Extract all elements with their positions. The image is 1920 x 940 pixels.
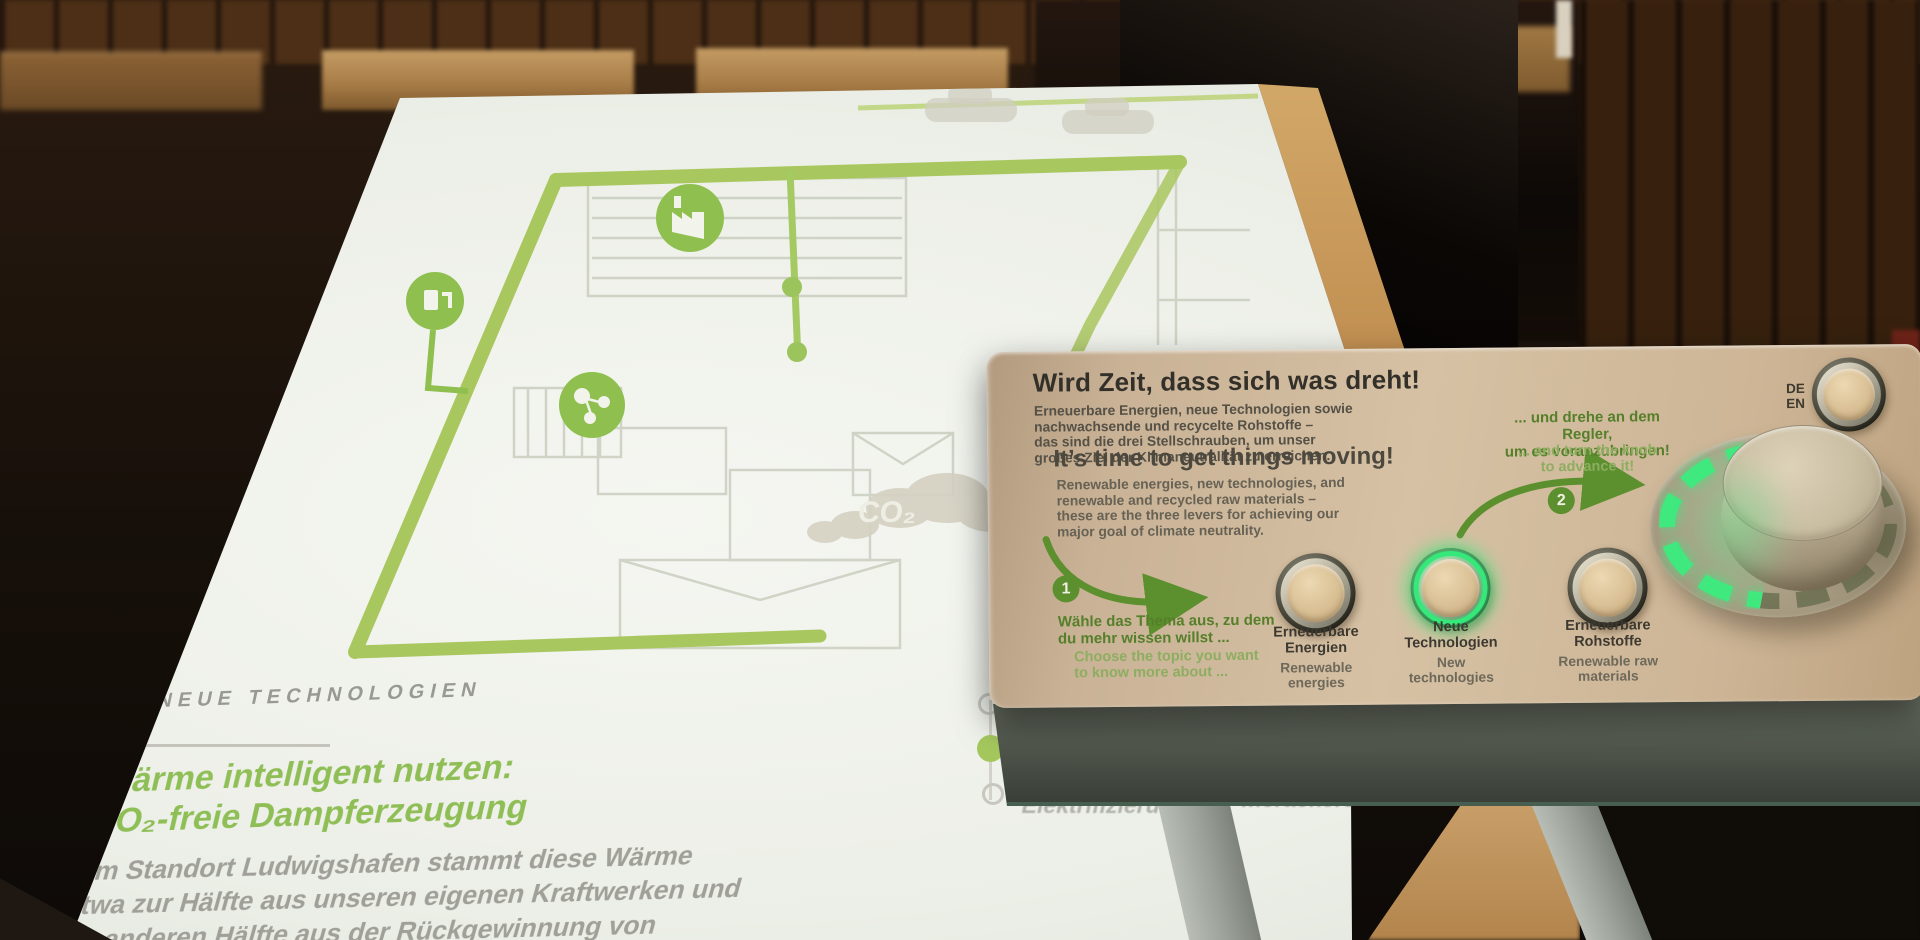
label-line: New: [1361, 654, 1541, 671]
dark-furniture: [1580, 0, 1920, 348]
progress-dot: [982, 783, 1004, 805]
button-face: [1578, 558, 1637, 617]
exhibit-scene: CO₂ NEUE TECHNOLOGIEN Wärme intelligent …: [0, 0, 1920, 940]
language-labels: DE EN: [1757, 381, 1805, 411]
divider: [95, 744, 330, 747]
language-toggle-button[interactable]: [1812, 357, 1887, 432]
button-label-new-technologies: NeueTechnologien Newtechnologies: [1361, 619, 1542, 686]
button-label-renewable-raw-materials: ErneuerbareRohstoffe Renewable rawmateri…: [1518, 618, 1699, 685]
button-face: [1421, 559, 1480, 618]
label-line: technologies: [1361, 669, 1541, 686]
background-table: [0, 52, 262, 110]
panel-heading-en: It’s time to get things moving!: [1053, 443, 1394, 474]
control-panel: Wird Zeit, dass sich was dreht! Erneuerb…: [986, 344, 1920, 708]
button-renewable-raw-materials[interactable]: [1567, 547, 1648, 628]
step2-badge: 2: [1548, 487, 1575, 514]
molecule-icon: [559, 372, 625, 438]
light-gap: [1556, 0, 1572, 58]
button-renewable-energies[interactable]: [1275, 553, 1356, 634]
panel-heading-de: Wird Zeit, dass sich was dreht!: [1033, 364, 1421, 398]
stand-body: [993, 694, 1920, 806]
button-face: [1823, 368, 1875, 420]
projection-body-text: Am Standort Ludwigshafen stammt diese Wä…: [43, 837, 755, 940]
button-new-technologies[interactable]: [1410, 548, 1491, 629]
projection-title: Wärme intelligent nutzen: CO₂-freie Damp…: [87, 746, 542, 842]
step-line: ... und drehe an dem Regler,: [1487, 408, 1687, 444]
intro-line: these are the three levers for achieving…: [1057, 506, 1345, 524]
label-line: materials: [1518, 668, 1698, 685]
label-line: Neue: [1361, 619, 1541, 636]
intro-line: major goal of climate neutrality.: [1057, 522, 1345, 540]
label-line: Technologien: [1361, 635, 1541, 652]
panel-intro-en: Renewable energies, new technologies, an…: [1057, 475, 1346, 540]
step-line: to advance it!: [1499, 458, 1675, 476]
label-line: Erneuerbare: [1518, 618, 1698, 635]
label-en: EN: [1757, 396, 1805, 411]
factory-icon: [656, 184, 724, 252]
co2-cloud-label: CO₂: [856, 496, 918, 529]
step2-text-en: ... and turn the knob to advance it!: [1499, 442, 1675, 476]
step-line: ... and turn the knob: [1499, 442, 1675, 460]
label-de: DE: [1757, 381, 1805, 396]
step2-arrow: [1460, 481, 1618, 535]
button-face: [1286, 564, 1345, 623]
step1-badge: 1: [1052, 575, 1079, 602]
label-line: Rohstoffe: [1518, 633, 1698, 650]
utility-icon: [406, 272, 468, 391]
label-line: Renewable raw: [1518, 653, 1698, 670]
